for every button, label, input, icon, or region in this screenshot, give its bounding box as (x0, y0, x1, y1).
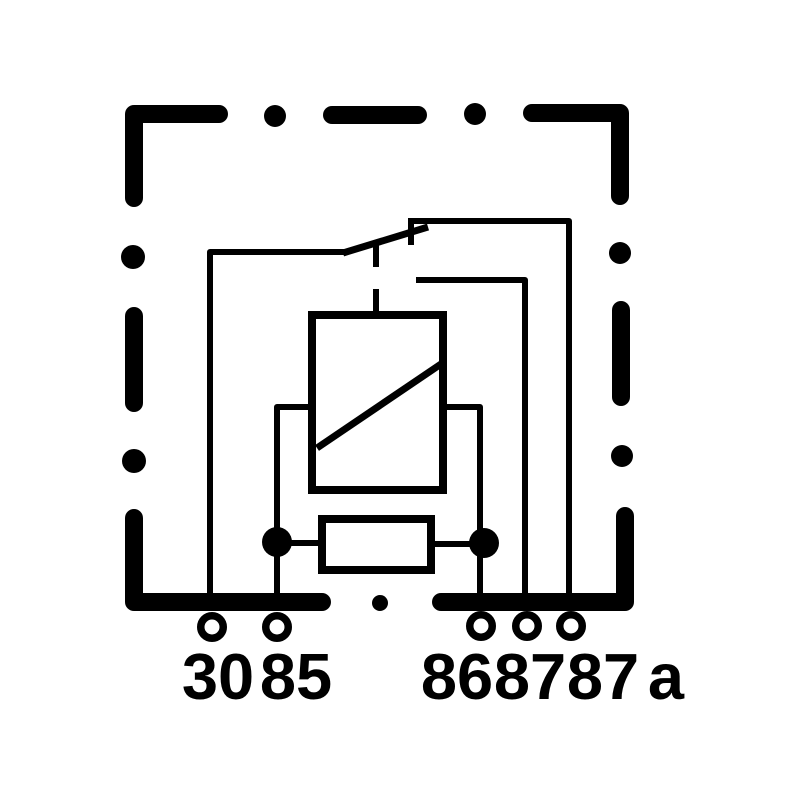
svg-text:30: 30 (182, 640, 254, 713)
svg-text:87: 87 (567, 640, 639, 713)
svg-text:86: 86 (421, 640, 493, 713)
svg-text:87: 87 (494, 640, 566, 713)
svg-text:85: 85 (260, 640, 332, 713)
svg-text:a: a (648, 640, 685, 713)
